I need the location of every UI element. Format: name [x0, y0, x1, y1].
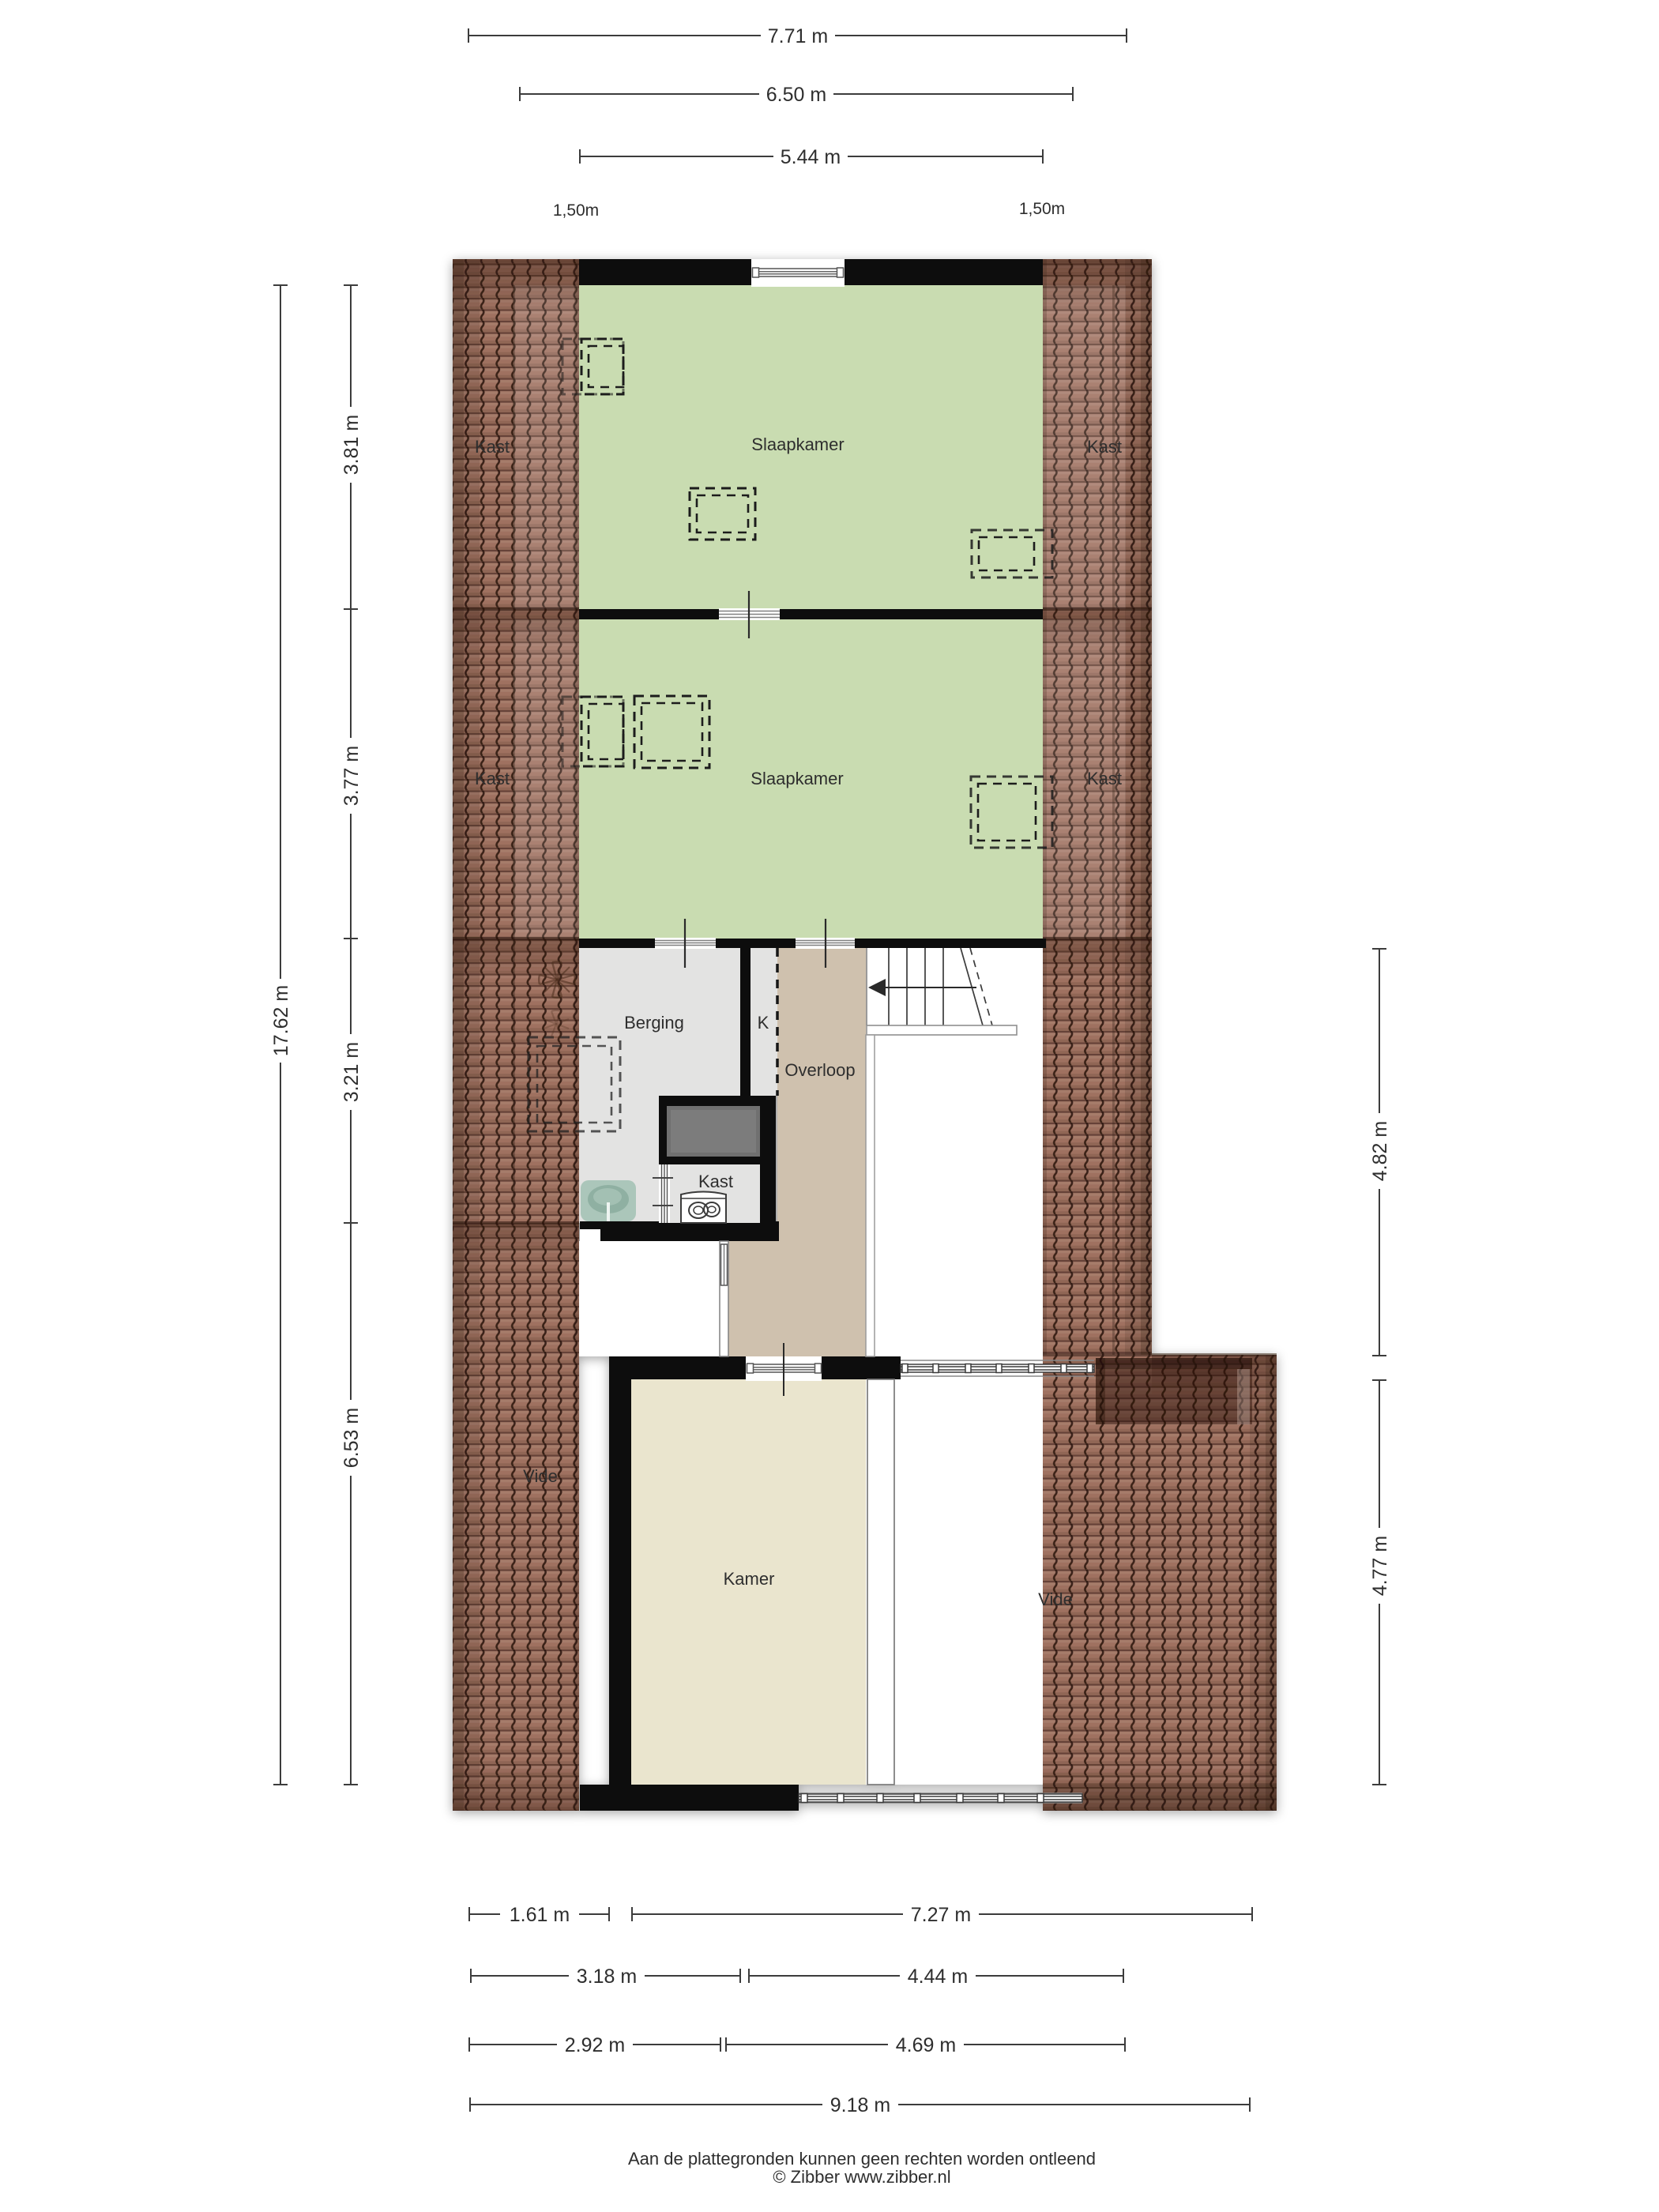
svg-text:Slaapkamer: Slaapkamer [750, 769, 843, 788]
svg-text:Kast: Kast [475, 769, 510, 788]
svg-text:Overloop: Overloop [784, 1060, 855, 1080]
svg-text:Kast: Kast [698, 1172, 733, 1191]
svg-text:6.53 m: 6.53 m [340, 1408, 363, 1468]
svg-text:3.21 m: 3.21 m [340, 1042, 363, 1102]
svg-text:6.50 m: 6.50 m [766, 84, 826, 106]
svg-text:4.82 m: 4.82 m [1369, 1121, 1391, 1181]
svg-text:Kast: Kast [475, 437, 510, 457]
svg-text:K: K [758, 1013, 769, 1033]
svg-text:7.71 m: 7.71 m [768, 25, 828, 47]
svg-text:1,50m: 1,50m [553, 201, 599, 220]
svg-text:9.18 m: 9.18 m [830, 2094, 890, 2116]
svg-text:17.62 m: 17.62 m [270, 985, 292, 1056]
svg-text:7.27 m: 7.27 m [911, 1904, 971, 1926]
svg-text:Aan de plattegronden kunnen ge: Aan de plattegronden kunnen geen rechten… [628, 2149, 1096, 2169]
svg-text:Vide: Vide [1038, 1589, 1073, 1609]
svg-text:3.81 m: 3.81 m [340, 415, 363, 475]
svg-text:Kamer: Kamer [724, 1569, 775, 1589]
svg-text:4.69 m: 4.69 m [896, 2034, 956, 2056]
svg-text:Kast: Kast [1087, 437, 1122, 457]
svg-text:4.44 m: 4.44 m [908, 1966, 968, 1988]
svg-text:1,50m: 1,50m [1019, 200, 1065, 218]
svg-text:Slaapkamer: Slaapkamer [751, 434, 844, 454]
svg-text:2.92 m: 2.92 m [565, 2034, 625, 2056]
svg-text:3.77 m: 3.77 m [340, 746, 363, 806]
svg-text:4.77 m: 4.77 m [1369, 1536, 1391, 1596]
svg-text:1.61 m: 1.61 m [510, 1904, 570, 1926]
svg-text:© Zibber www.zibber.nl: © Zibber www.zibber.nl [773, 2167, 950, 2187]
svg-text:Kast: Kast [1087, 769, 1122, 788]
svg-text:Vide: Vide [523, 1466, 558, 1486]
svg-text:5.44 m: 5.44 m [781, 146, 841, 168]
svg-text:Berging: Berging [624, 1013, 684, 1033]
svg-text:3.18 m: 3.18 m [577, 1966, 637, 1988]
